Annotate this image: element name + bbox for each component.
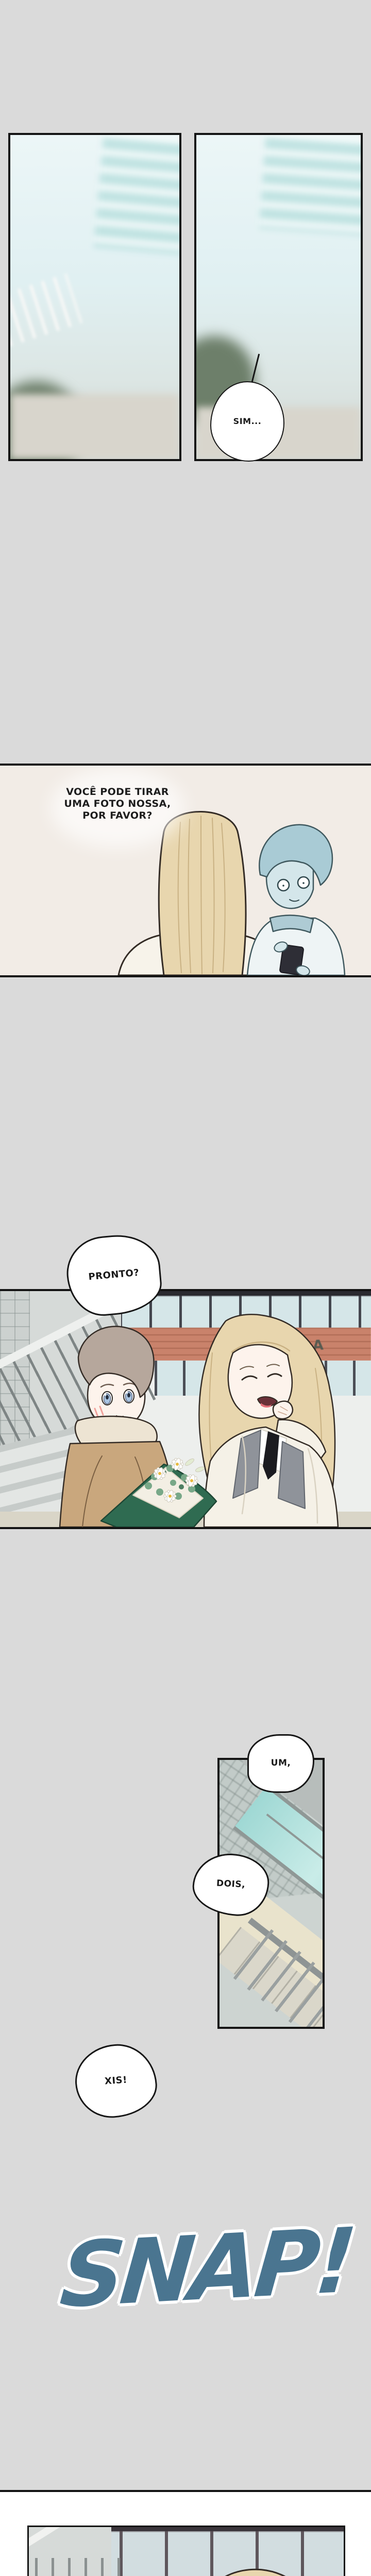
bubble-text: SIM...	[233, 416, 262, 426]
sfx-camera-snap: SNAP!	[57, 2215, 371, 2320]
blurred-building	[93, 133, 181, 255]
blurred-building	[259, 133, 363, 236]
photo-characters	[29, 2527, 344, 2576]
polaroid-photo-card: Formatura do Doyun no Fundamental.	[0, 2490, 371, 2576]
blonde-hair	[193, 2569, 327, 2576]
panel-boy-profile-far	[8, 133, 181, 461]
blonde-back-hair	[159, 811, 246, 975]
pupil	[302, 882, 305, 884]
pupil	[282, 885, 284, 887]
panel-photo-request: VOCÊ PODE TIRAR UMA FOTO NOSSA, POR FAVO…	[0, 764, 371, 977]
speech-bubble-sim: SIM...	[210, 381, 284, 462]
dialogue-line: VOCÊ PODE TIRAR	[56, 786, 179, 798]
dialogue-line: POR FAVOR?	[56, 810, 179, 822]
speech-bubble-um: UM,	[247, 1734, 314, 1793]
blonde-hand-chin	[273, 1401, 293, 1419]
photo	[27, 2526, 345, 2576]
bubble-text: UM,	[271, 1758, 291, 1768]
dialogue-line: UMA FOTO NOSSA,	[56, 798, 179, 810]
shine	[126, 1392, 128, 1394]
blonde-vest-right	[278, 1442, 305, 1509]
bubble-text: DOIS,	[216, 1878, 246, 1890]
blurred-pavement	[10, 394, 179, 459]
bubble-text: XIS!	[104, 2074, 127, 2087]
speech-bubble-xis: XIS!	[73, 2042, 159, 2121]
shine	[104, 1394, 106, 1396]
panel-school-yard: SOFIA	[0, 1289, 371, 1529]
panel4-characters	[0, 1291, 371, 1527]
webtoon-page: SIM... VOCÊ PODE TIRAR UMA FOTO NOSSA, P…	[0, 0, 371, 2576]
pupil	[127, 1393, 130, 1398]
pupil	[106, 1395, 109, 1400]
bubble-text: PRONTO?	[88, 1267, 140, 1282]
dialogue-photo-request: VOCÊ PODE TIRAR UMA FOTO NOSSA, POR FAVO…	[56, 786, 179, 822]
